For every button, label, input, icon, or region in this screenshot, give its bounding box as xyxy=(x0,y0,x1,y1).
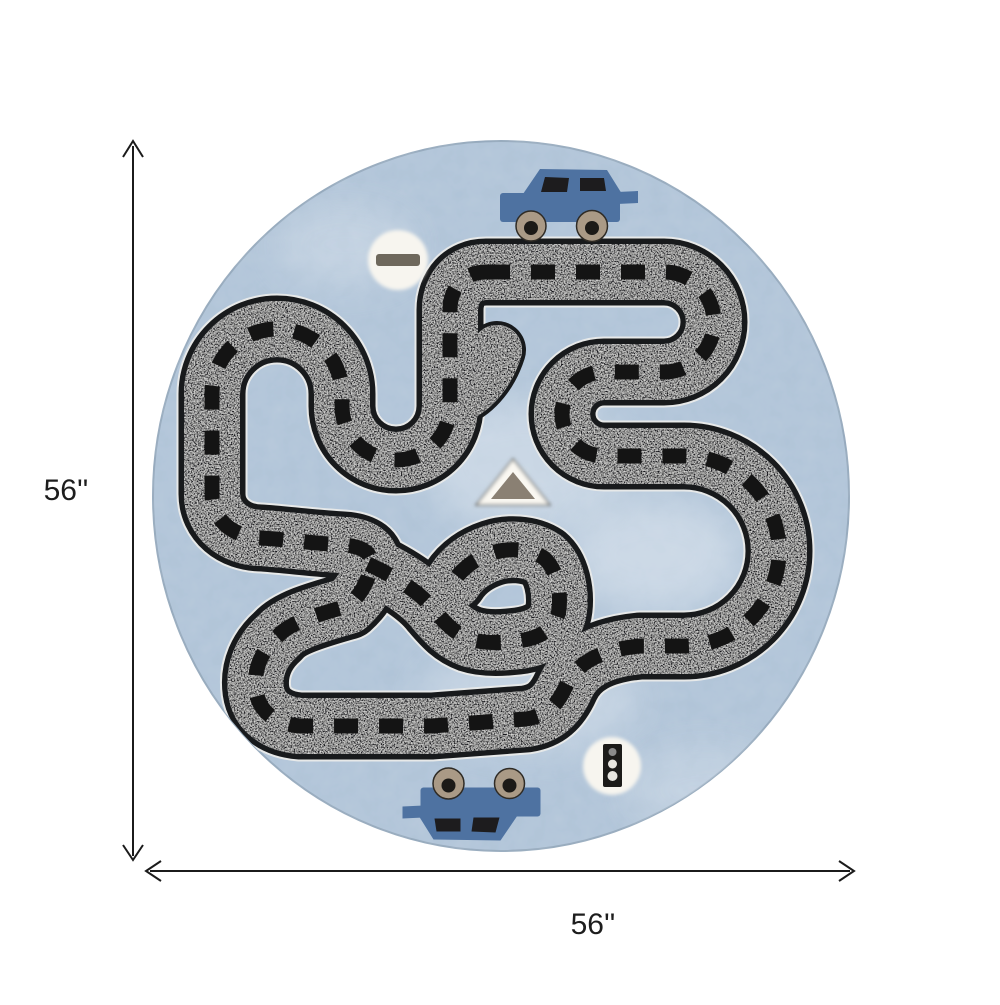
svg-text:56'': 56'' xyxy=(44,474,89,507)
svg-text:56'': 56'' xyxy=(571,908,616,941)
